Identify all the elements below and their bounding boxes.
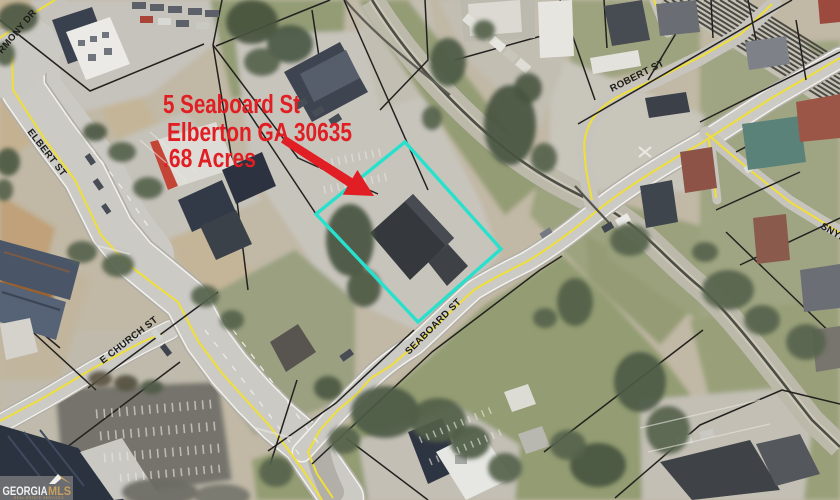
svg-text:5 Seaboard St: 5 Seaboard St <box>163 91 300 119</box>
svg-text:Elberton GA 30635: Elberton GA 30635 <box>167 119 352 147</box>
svg-text:.68 Acres: .68 Acres <box>163 145 256 173</box>
svg-text:REAL ESTATE SERVICES: REAL ESTATE SERVICES <box>14 496 64 500</box>
